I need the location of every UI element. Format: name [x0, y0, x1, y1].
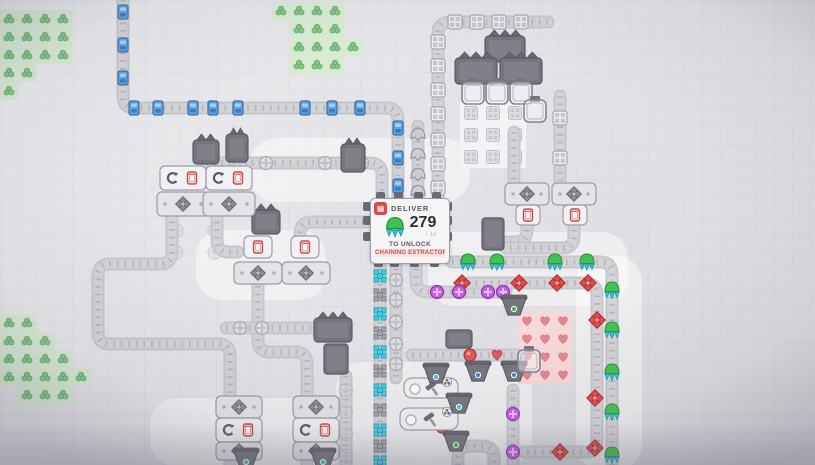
green-item [490, 254, 504, 270]
target-shape-icon [384, 216, 406, 238]
circle-item [234, 322, 247, 335]
purple-item [482, 286, 495, 299]
module-cb[interactable] [293, 418, 339, 442]
selbox[interactable] [518, 346, 540, 372]
trash-icon [571, 209, 580, 221]
crate-icon: ▦ [377, 204, 385, 213]
waffleg-icon [465, 151, 478, 164]
waffle-item [492, 15, 506, 29]
green-item [605, 282, 619, 298]
circle-item [319, 157, 332, 170]
waffleg-icon [487, 129, 500, 142]
painter[interactable] [400, 407, 458, 430]
crafter[interactable] [203, 192, 255, 216]
waffleg-icon [487, 107, 500, 120]
delivery-hub[interactable]: ▦ DELIVER 279 / 1x TO UNLOCK CHAINING EX… [370, 198, 450, 264]
hub-unlock-label: TO UNLOCK [371, 241, 449, 248]
crafter[interactable] [293, 396, 339, 418]
waffle-item [431, 133, 445, 147]
blue-item [118, 38, 128, 52]
green-item [605, 447, 619, 463]
selbox[interactable] [462, 78, 484, 104]
crafter[interactable] [282, 262, 330, 284]
circle-item [390, 316, 403, 329]
circle-item [390, 358, 403, 371]
trash-icon [234, 172, 243, 184]
circlef-item [340, 450, 353, 463]
module-cb[interactable] [216, 418, 262, 442]
work-slot [406, 415, 416, 425]
purple-item [507, 408, 520, 421]
output-dot [511, 372, 516, 377]
block[interactable] [324, 344, 348, 374]
green-item [605, 404, 619, 420]
waffle-item [431, 157, 445, 171]
crafter[interactable] [505, 183, 549, 205]
trash-icon [254, 241, 263, 253]
module-bin[interactable] [563, 205, 587, 225]
circle-item [390, 338, 403, 351]
green-item [605, 364, 619, 380]
waffle-item [553, 151, 567, 165]
crafter[interactable] [552, 183, 596, 205]
circle-item [260, 157, 273, 170]
waffle-item [448, 15, 462, 29]
blue-item [118, 5, 128, 19]
work-slot [410, 384, 420, 394]
waffle-item [553, 111, 567, 125]
trash-icon [244, 424, 253, 436]
waffleg-icon [487, 151, 500, 164]
trash-icon [321, 424, 330, 436]
blue-item [393, 151, 403, 165]
block[interactable] [446, 330, 472, 348]
output-dot [475, 372, 480, 377]
waffle-item [431, 35, 445, 49]
waffle-item [431, 59, 445, 73]
waffle-item [470, 15, 484, 29]
blue-item [393, 121, 403, 135]
module-bin[interactable] [291, 236, 319, 258]
module-cb[interactable] [206, 166, 252, 190]
module-cb[interactable] [160, 166, 206, 190]
circle-item [390, 294, 403, 307]
selbox[interactable] [524, 96, 546, 122]
selbox[interactable] [486, 78, 508, 104]
blue-item [233, 101, 243, 115]
blue-item [129, 101, 139, 115]
blue-item [188, 101, 198, 115]
module-bin[interactable] [244, 236, 272, 258]
circlef-item [340, 406, 353, 419]
circle-item [390, 274, 403, 287]
waffleg-icon [465, 129, 478, 142]
hub-amount: 279 [410, 215, 437, 231]
waffleg-icon [465, 107, 478, 120]
factory-map-viewport[interactable]: ▦ DELIVER 279 / 1x TO UNLOCK CHAINING EX… [0, 0, 815, 465]
extractor[interactable] [314, 312, 352, 342]
crafter[interactable] [234, 262, 282, 284]
green-item [461, 254, 475, 270]
trash-icon [188, 172, 197, 184]
green-item [548, 254, 562, 270]
blue-item [355, 101, 365, 115]
block[interactable] [482, 218, 504, 250]
color-pin-icon [442, 407, 451, 416]
delivery-badge: ▦ [374, 202, 387, 215]
trash-icon [301, 241, 310, 253]
blue-item [393, 179, 403, 193]
green-item [580, 254, 594, 270]
circlef-item [340, 428, 353, 441]
redc-item [464, 349, 476, 361]
trash-icon [524, 209, 533, 221]
output-dot [433, 374, 438, 379]
blue-item [118, 71, 128, 85]
blue-item [300, 101, 310, 115]
waffle-item [514, 15, 528, 29]
blue-item [153, 101, 163, 115]
purple-item [453, 286, 466, 299]
hub-unlock-item: CHAINING EXTRACTOR [375, 249, 445, 257]
output-dot [511, 306, 516, 311]
module-bin[interactable] [516, 205, 540, 225]
output-dot [456, 404, 461, 409]
output-dot [243, 459, 248, 464]
circlef-item [340, 384, 353, 397]
waffle-item [431, 107, 445, 121]
output-dot [320, 459, 325, 464]
purple-item [431, 286, 444, 299]
purple-item [507, 446, 520, 459]
circle-item [256, 322, 269, 335]
output-dot [453, 442, 458, 447]
waffle-item [431, 83, 445, 97]
crafter[interactable] [216, 396, 262, 418]
waffleg-icon [509, 107, 522, 120]
blue-item [327, 101, 337, 115]
green-item [605, 322, 619, 338]
hub-rate: / 1x [410, 232, 437, 239]
blue-item [208, 101, 218, 115]
crafter[interactable] [157, 192, 209, 216]
